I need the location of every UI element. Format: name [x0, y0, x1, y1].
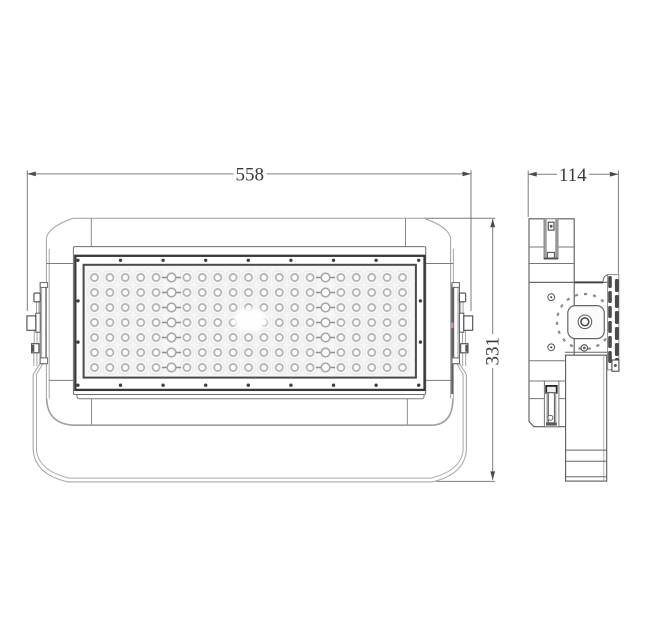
svg-text:114: 114	[559, 165, 587, 186]
svg-text:558: 558	[236, 165, 265, 186]
svg-text:331: 331	[482, 337, 503, 366]
